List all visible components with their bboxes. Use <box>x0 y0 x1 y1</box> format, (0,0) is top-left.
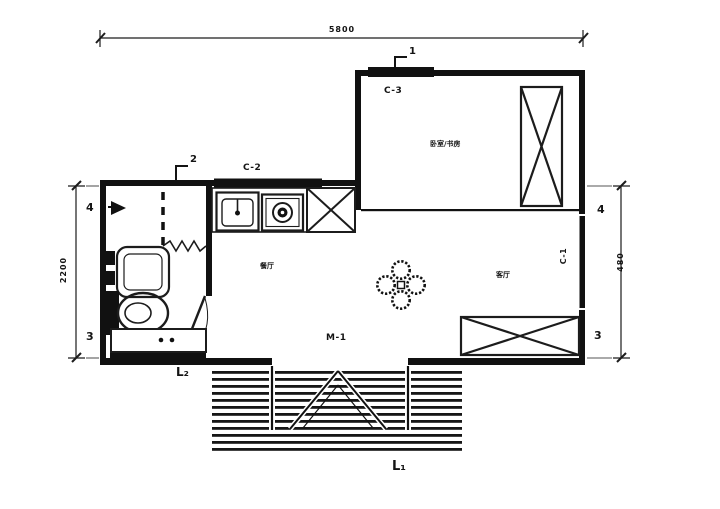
deck-terrace <box>212 366 462 454</box>
table-symbol <box>377 261 424 308</box>
dimension-right-value: 480 <box>617 246 625 278</box>
sofa-x-cabinet <box>461 317 579 355</box>
stove-symbol <box>262 195 303 231</box>
room-label-dining: 餐厅 <box>260 263 274 270</box>
elevation-marker-left-bottom: 3 <box>86 331 94 342</box>
window-c3 <box>368 67 434 77</box>
door-tag-m1: M-1 <box>326 334 346 343</box>
window-tag-c3: C-3 <box>384 87 402 96</box>
section-bracket-2 <box>176 166 188 180</box>
kitchen-x-cabinet <box>307 188 355 232</box>
elevation-marker-left-top: 4 <box>86 202 94 213</box>
room-label-bedroom-study: 卧室/书房 <box>430 141 461 148</box>
window-c2 <box>214 179 322 189</box>
dimension-line-left <box>68 181 99 362</box>
section-marker-2: 2 <box>190 155 197 165</box>
basin-symbol <box>106 247 169 297</box>
dimension-left-value: 2200 <box>60 254 68 286</box>
dimension-top-value: 5800 <box>322 26 362 34</box>
elevation-marker-right-top: 4 <box>597 204 605 215</box>
room-label-living: 客厅 <box>496 272 510 279</box>
wardrobe-symbol <box>521 87 562 206</box>
floor-plan-canvas: 5800 2200 480 1 2 4 3 4 3 C-3 C-2 C-1 M-… <box>0 0 720 509</box>
floor-plan-linework <box>0 0 720 509</box>
level-tag-l2: L₂ <box>176 366 189 378</box>
sink-symbol <box>217 193 259 231</box>
window-tag-c2: C-2 <box>243 164 261 173</box>
shower-symbol <box>108 201 126 215</box>
elevation-marker-right-bottom: 3 <box>594 330 602 341</box>
shower-curtain-zigzag <box>163 241 206 251</box>
section-marker-1: 1 <box>409 47 416 57</box>
window-c1 <box>580 216 586 308</box>
level-tag-l1: L₁ <box>392 460 406 473</box>
bathroom-cabinet-symbol <box>111 329 206 352</box>
window-tag-c1: C-1 <box>560 248 568 264</box>
